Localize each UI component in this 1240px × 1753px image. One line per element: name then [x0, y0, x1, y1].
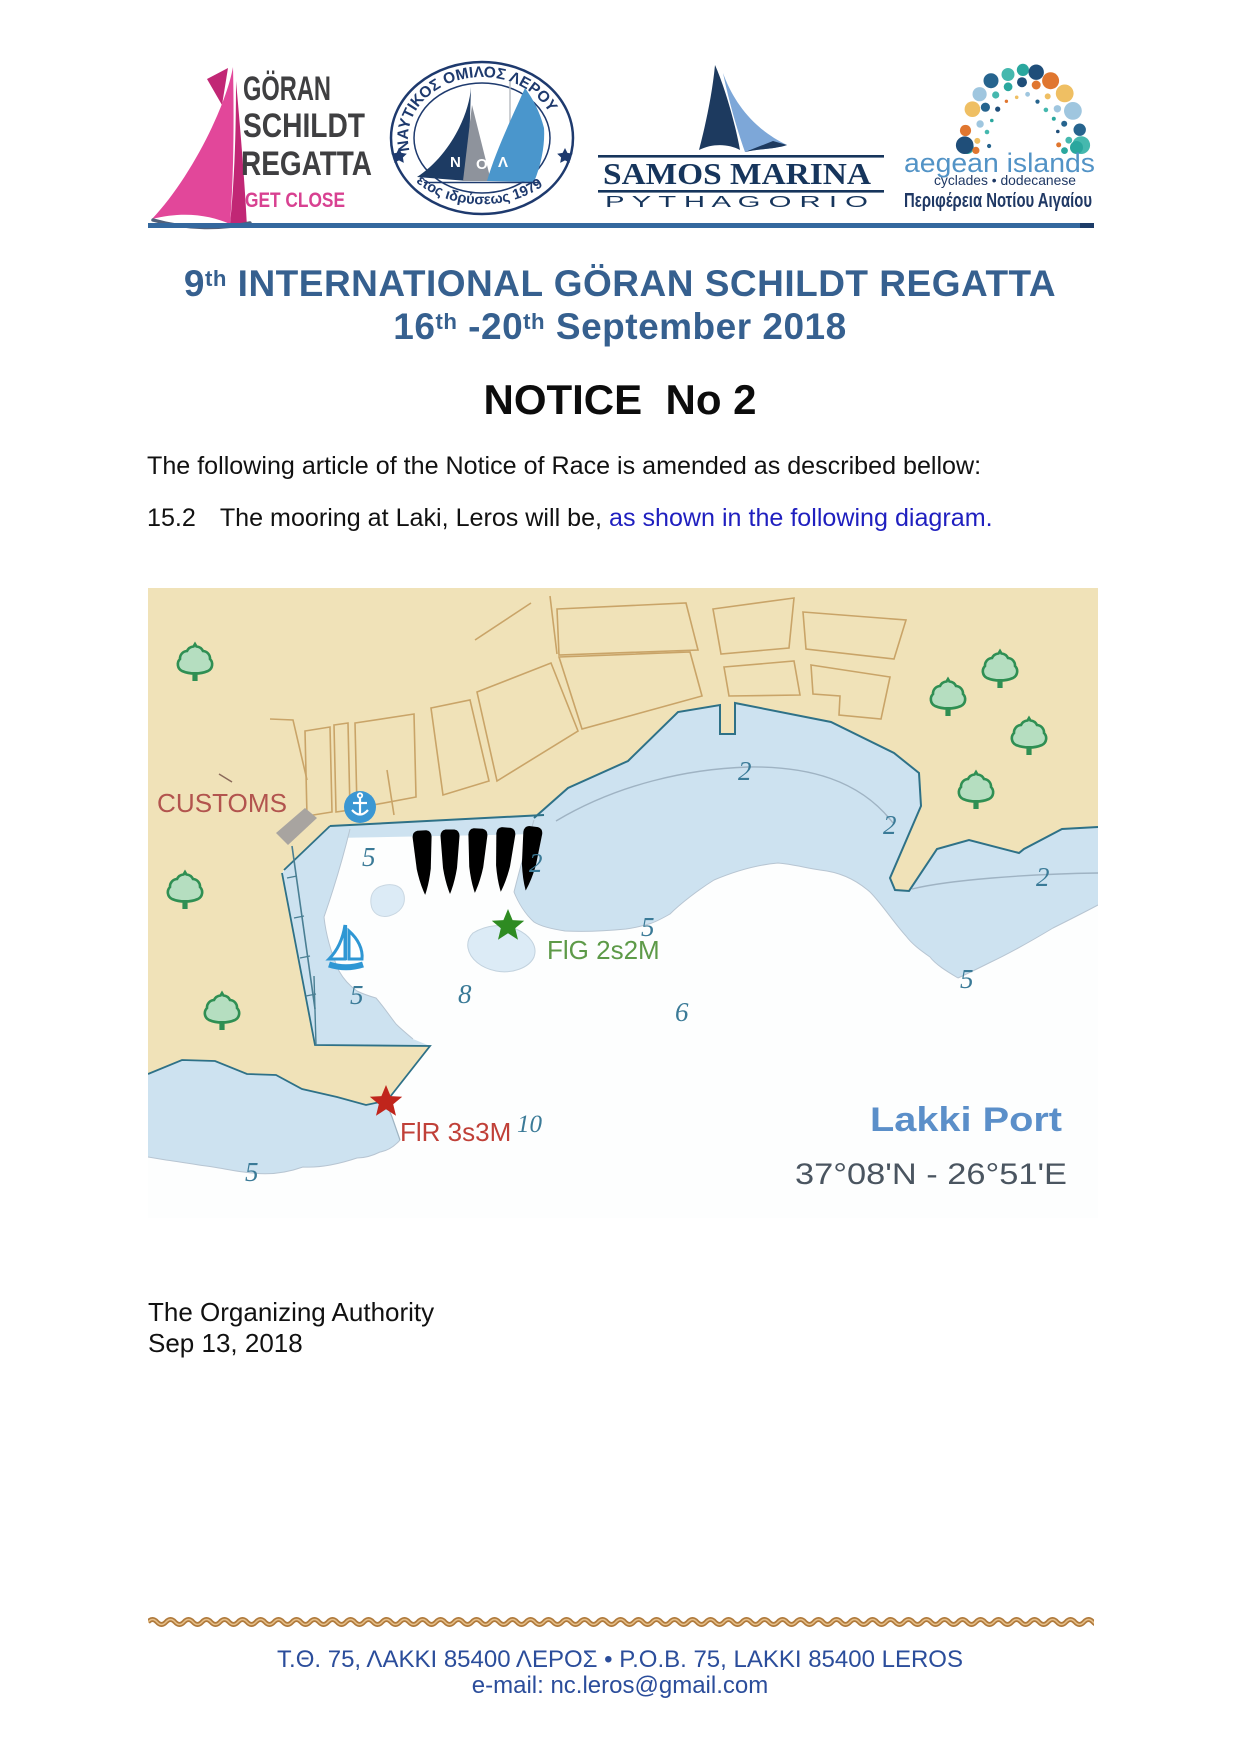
- svg-text:10: 10: [517, 1111, 543, 1138]
- svg-text:6: 6: [675, 997, 689, 1027]
- svg-text:5: 5: [641, 912, 655, 942]
- svg-text:5: 5: [350, 980, 364, 1010]
- svg-text:SAMOS MARINA: SAMOS MARINA: [603, 156, 872, 191]
- svg-text:2: 2: [529, 848, 543, 878]
- svg-text:8: 8: [458, 979, 472, 1009]
- svg-text:P Y T H A G O R I O: P Y T H A G O R I O: [605, 194, 868, 211]
- svg-text:2: 2: [883, 810, 897, 840]
- svg-text:37°08'N - 26°51'E: 37°08'N - 26°51'E: [795, 1158, 1067, 1191]
- svg-text:REGATTA: REGATTA: [241, 145, 372, 183]
- svg-text:SCHILDT: SCHILDT: [243, 107, 365, 145]
- svg-text:5: 5: [362, 842, 376, 872]
- svg-text:5: 5: [245, 1157, 259, 1187]
- svg-text:2: 2: [1036, 862, 1050, 892]
- svg-text:Ο: Ο: [476, 156, 488, 173]
- svg-text:Ν: Ν: [450, 154, 461, 171]
- svg-text:GET CLOSE: GET CLOSE: [245, 189, 345, 212]
- svg-text:cyclades • dodecanese: cyclades • dodecanese: [934, 172, 1076, 188]
- svg-text:FlR 3s3M: FlR 3s3M: [400, 1117, 511, 1147]
- svg-text:Lakki Port: Lakki Port: [870, 1101, 1062, 1139]
- svg-text:2: 2: [738, 756, 752, 786]
- svg-text:Περιφέρεια Νοτίου Αιγαίου: Περιφέρεια Νοτίου Αιγαίου: [904, 190, 1092, 212]
- svg-text:5: 5: [960, 964, 974, 994]
- svg-text:Λ: Λ: [498, 154, 508, 171]
- svg-text:CUSTOMS: CUSTOMS: [157, 788, 287, 818]
- svg-text:GÖRAN: GÖRAN: [243, 70, 331, 108]
